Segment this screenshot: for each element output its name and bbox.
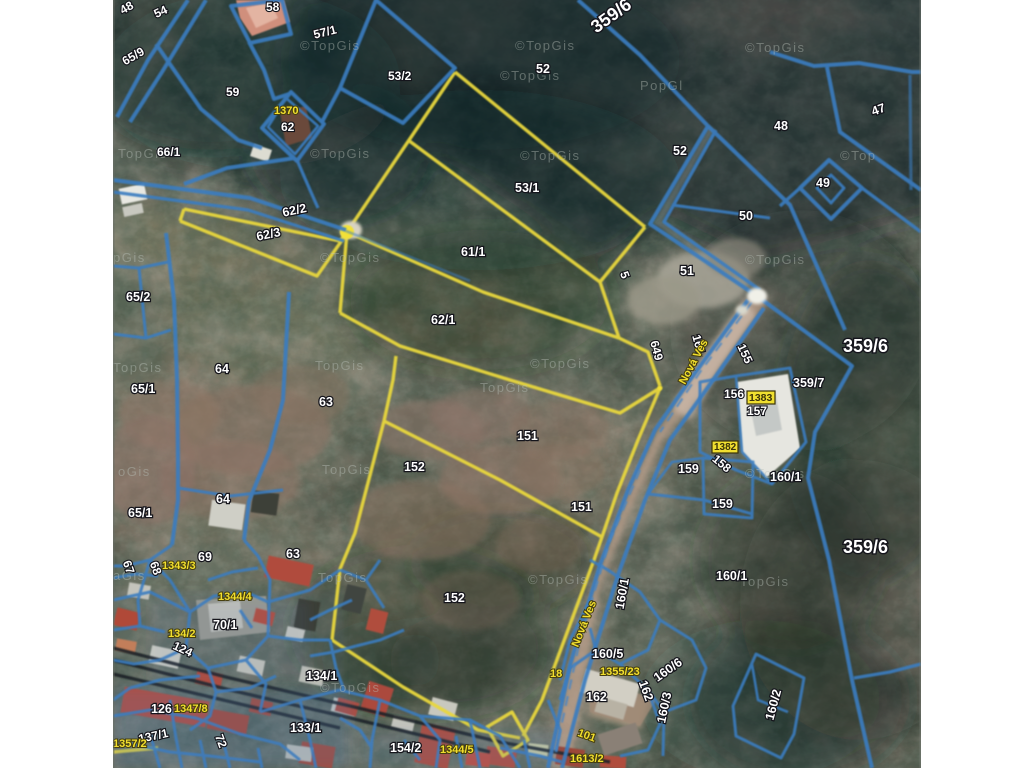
svg-text:52: 52 — [536, 62, 550, 76]
svg-text:65/1: 65/1 — [128, 506, 152, 520]
svg-text:160/1: 160/1 — [770, 470, 801, 484]
svg-text:53/1: 53/1 — [515, 181, 539, 195]
svg-text:1344/5: 1344/5 — [440, 744, 474, 756]
svg-text:18: 18 — [550, 668, 562, 680]
svg-text:1370: 1370 — [274, 105, 298, 117]
svg-text:©TopGis: ©TopGis — [500, 68, 561, 83]
svg-text:1355/23: 1355/23 — [600, 666, 640, 678]
svg-text:156: 156 — [724, 387, 744, 401]
svg-text:65/1: 65/1 — [131, 382, 155, 396]
svg-text:1383: 1383 — [749, 392, 773, 404]
svg-text:TopGis: TopGis — [113, 360, 162, 375]
svg-text:63: 63 — [286, 547, 300, 561]
svg-text:61/1: 61/1 — [461, 245, 485, 259]
svg-text:160/1: 160/1 — [716, 569, 747, 583]
svg-text:51: 51 — [680, 264, 694, 278]
svg-text:65/2: 65/2 — [126, 290, 150, 304]
svg-text:©TopGis: ©TopGis — [515, 38, 576, 53]
svg-text:TopGis: TopGis — [740, 574, 789, 589]
svg-text:134/1: 134/1 — [306, 669, 337, 683]
svg-text:157: 157 — [747, 404, 767, 418]
svg-text:TopGis: TopGis — [318, 570, 367, 585]
svg-text:©TopGis: ©TopGis — [520, 148, 581, 163]
svg-text:359/7: 359/7 — [793, 376, 824, 390]
svg-text:1344/4: 1344/4 — [218, 591, 253, 603]
svg-text:64: 64 — [216, 492, 230, 506]
svg-text:1357/2: 1357/2 — [113, 738, 147, 750]
svg-text:359/6: 359/6 — [843, 537, 888, 557]
svg-text:48: 48 — [774, 119, 788, 133]
svg-text:133/1: 133/1 — [290, 721, 321, 735]
svg-text:154/2: 154/2 — [390, 741, 421, 755]
svg-text:53/2: 53/2 — [388, 69, 412, 83]
svg-text:66/1: 66/1 — [157, 145, 181, 159]
svg-text:52: 52 — [673, 144, 687, 158]
svg-text:oGis: oGis — [118, 464, 151, 479]
svg-text:©TopGis: ©TopGis — [745, 252, 806, 267]
svg-text:160/5: 160/5 — [592, 647, 623, 661]
svg-text:PopGl: PopGl — [640, 78, 684, 93]
svg-text:1613/2: 1613/2 — [570, 753, 604, 765]
svg-text:49: 49 — [816, 176, 830, 190]
svg-text:63: 63 — [319, 395, 333, 409]
svg-text:59: 59 — [226, 85, 240, 99]
svg-text:1382: 1382 — [714, 442, 737, 453]
svg-text:70/1: 70/1 — [213, 618, 237, 632]
svg-text:159: 159 — [712, 497, 733, 511]
svg-text:TopGis: TopGis — [322, 462, 371, 477]
svg-text:159: 159 — [678, 462, 699, 476]
svg-text:359/6: 359/6 — [843, 336, 888, 356]
svg-text:©TopGis: ©TopGis — [528, 572, 589, 587]
svg-text:162: 162 — [586, 690, 607, 704]
svg-text:©Top: ©Top — [840, 148, 877, 163]
svg-text:1347/8: 1347/8 — [174, 703, 208, 715]
svg-text:152: 152 — [404, 460, 425, 474]
svg-text:58: 58 — [266, 0, 280, 14]
svg-text:©TopGis: ©TopGis — [310, 146, 371, 161]
svg-text:126: 126 — [151, 702, 172, 716]
svg-text:62: 62 — [281, 120, 295, 134]
svg-text:©TopGis: ©TopGis — [320, 250, 381, 265]
svg-text:pGis: pGis — [113, 250, 146, 265]
svg-text:TopGis: TopGis — [480, 380, 529, 395]
svg-text:1343/3: 1343/3 — [162, 560, 196, 572]
svg-text:TopGis: TopGis — [315, 358, 364, 373]
svg-text:©TopGis: ©TopGis — [745, 40, 806, 55]
svg-text:62/1: 62/1 — [431, 313, 455, 327]
svg-text:64: 64 — [215, 362, 229, 376]
svg-text:©TopGis: ©TopGis — [300, 38, 361, 53]
svg-text:151: 151 — [517, 429, 538, 443]
svg-text:151: 151 — [571, 500, 592, 514]
svg-text:152: 152 — [444, 591, 465, 605]
svg-text:69: 69 — [198, 550, 212, 564]
svg-text:50: 50 — [739, 209, 753, 223]
svg-text:©TopGis: ©TopGis — [530, 356, 591, 371]
svg-text:134/2: 134/2 — [168, 628, 196, 640]
